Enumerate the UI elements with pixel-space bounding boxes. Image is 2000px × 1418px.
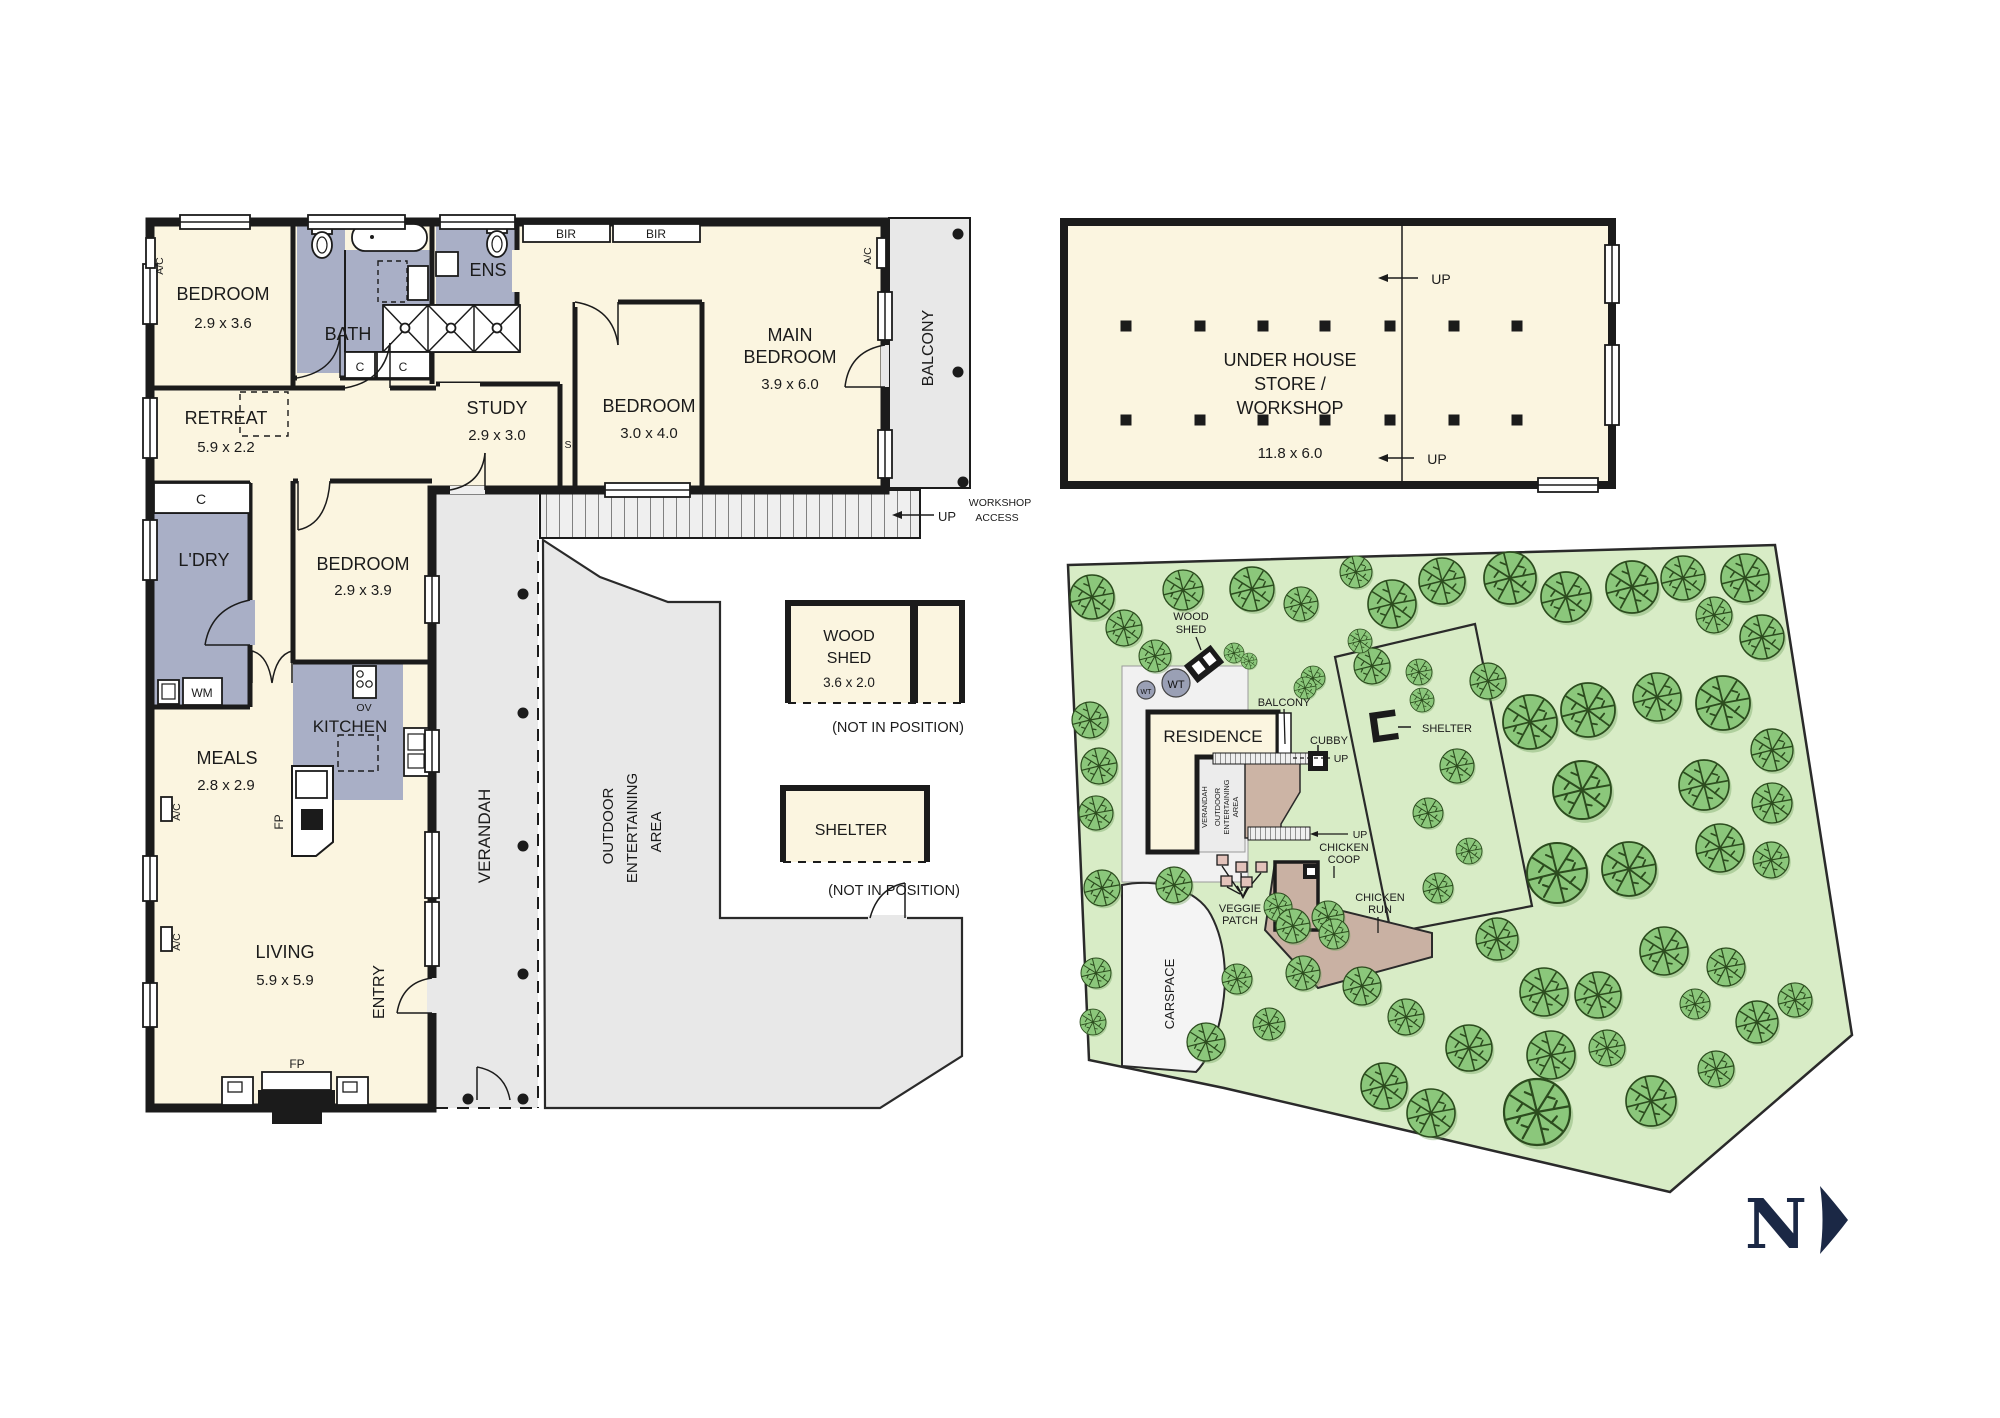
ldry-label: L'DRY — [178, 550, 229, 570]
shelter-note: (NOT IN POSITION) — [828, 883, 960, 899]
wood-shed-box: WOOD SHED 3.6 x 2.0 (NOT IN POSITION) — [788, 603, 964, 736]
site-woodshed-line1: WOOD — [1173, 611, 1208, 623]
chicken-coop-line1: CHICKEN — [1319, 842, 1369, 854]
post — [958, 477, 969, 488]
bedroom3-dims: 3.0 x 4.0 — [620, 425, 678, 442]
living-dims: 5.9 x 5.9 — [256, 972, 314, 989]
ac-label: A/C — [171, 803, 183, 821]
bedroom4-label: BEDROOM — [316, 554, 409, 574]
bedroom1-label: BEDROOM — [176, 284, 269, 304]
window — [878, 430, 892, 478]
window — [425, 902, 439, 966]
ac-label: A/C — [154, 257, 166, 275]
ac-label: A/C — [171, 933, 183, 951]
woodshed-line2: SHED — [827, 650, 871, 667]
structural-column — [1195, 415, 1206, 426]
site-outdoor-line3: AREA — [1231, 797, 1240, 817]
study-label: STUDY — [466, 398, 527, 418]
woodshed-line1: WOOD — [823, 628, 875, 645]
woodshed-dims: 3.6 x 2.0 — [823, 675, 875, 690]
c2-label: C — [399, 360, 408, 374]
post — [518, 1094, 529, 1105]
woodshed-note: (NOT IN POSITION) — [832, 720, 964, 736]
bedroom4-dims: 2.9 x 3.9 — [334, 582, 392, 599]
outdoor-line2: ENTERTAINING — [624, 773, 641, 883]
toilet-bath — [312, 225, 332, 258]
window — [308, 215, 405, 229]
structural-column — [1320, 321, 1331, 332]
window — [180, 215, 250, 229]
structural-column — [1195, 321, 1206, 332]
outdoor-line3: AREA — [648, 812, 665, 853]
window — [143, 520, 157, 580]
ov-label: OV — [356, 702, 371, 714]
study-dims: 2.9 x 3.0 — [468, 427, 526, 444]
c1-label: C — [356, 360, 365, 374]
kitchen-label: KITCHEN — [313, 717, 388, 736]
shelter-box: SHELTER (NOT IN POSITION) — [783, 788, 960, 899]
structural-column — [1512, 321, 1523, 332]
window — [143, 398, 157, 458]
ac-unit — [877, 238, 886, 268]
ens-vanity — [436, 252, 458, 276]
up-label: UP — [1427, 451, 1446, 467]
under-house-workshop: UP UP UNDER HOUSE STORE / WORKSHOP 11.8 … — [1064, 222, 1619, 492]
up-label: UP — [938, 509, 956, 524]
bath-label: BATH — [325, 324, 372, 344]
structural-column — [1385, 321, 1396, 332]
skylight-row — [383, 305, 520, 352]
fp-living-label: FP — [289, 1057, 304, 1071]
ldry-c-label: C — [196, 491, 206, 507]
bedroom1-dims: 2.9 x 3.6 — [194, 315, 252, 332]
bath-vanity — [408, 266, 428, 300]
retreat-label: RETREAT — [185, 408, 268, 428]
wt-small-label: WT — [1141, 689, 1153, 696]
veggie-line1: VEGGIE — [1219, 903, 1261, 915]
main-bedroom-line2: BEDROOM — [743, 347, 836, 367]
living-label: LIVING — [255, 942, 314, 962]
entry-label: ENTRY — [371, 965, 388, 1019]
structural-column — [1121, 415, 1132, 426]
post — [518, 841, 529, 852]
structural-column — [1449, 415, 1460, 426]
bir1-label: BIR — [556, 227, 576, 241]
up-label: UP — [1431, 271, 1450, 287]
post — [953, 229, 964, 240]
chicken-coop-line2: COOP — [1328, 854, 1360, 866]
balcony-label: BALCONY — [920, 309, 937, 386]
structural-column — [1385, 415, 1396, 426]
window — [878, 292, 892, 340]
site-verandah-label: VERANDAH — [1200, 786, 1209, 828]
main-bedroom-dims: 3.9 x 6.0 — [761, 376, 819, 393]
shelter-box-label: SHELTER — [815, 822, 888, 839]
veggie-line2: PATCH — [1222, 915, 1258, 927]
bedroom3-label: BEDROOM — [602, 396, 695, 416]
north-arrow-icon — [1820, 1186, 1848, 1254]
post — [518, 589, 529, 600]
meals-label: MEALS — [196, 748, 257, 768]
verandah-label: VERANDAH — [475, 789, 494, 883]
window — [425, 730, 439, 772]
wt-large-label: WT — [1167, 679, 1184, 691]
workshop-line1: UNDER HOUSE — [1223, 350, 1356, 370]
post — [953, 367, 964, 378]
workshop-access-line1: WORKSHOP — [969, 497, 1031, 509]
north-indicator: N — [1745, 1185, 1848, 1265]
meals-dims: 2.8 x 2.9 — [197, 777, 255, 794]
fp-kitchen-label: FP — [272, 814, 286, 829]
ens-label: ENS — [469, 260, 506, 280]
window — [143, 983, 157, 1027]
site-stairs-bottom — [1248, 827, 1310, 840]
workshop-access-stairs — [540, 490, 920, 538]
ac-label: A/C — [862, 247, 874, 265]
window — [425, 832, 439, 898]
kitchen-fireplace-bench — [292, 766, 333, 856]
site-woodshed-line2: SHED — [1176, 624, 1207, 636]
up-label: UP — [1334, 753, 1349, 765]
post — [518, 969, 529, 980]
living-fireplace — [222, 1072, 368, 1124]
floorplan-canvas: BEDROOM 2.9 x 3.6 BATH ENS BIR BIR MAIN … — [0, 0, 2000, 1413]
window — [605, 483, 690, 497]
bir2-label: BIR — [646, 227, 666, 241]
north-label: N — [1745, 1185, 1807, 1265]
site-residence-label: RESIDENCE — [1163, 727, 1262, 746]
workshop-access-line2: ACCESS — [975, 512, 1018, 524]
floorplan-page: BEDROOM 2.9 x 3.6 BATH ENS BIR BIR MAIN … — [0, 0, 2000, 1413]
window — [440, 215, 515, 229]
structural-column — [1121, 321, 1132, 332]
retreat-dims: 5.9 x 2.2 — [197, 439, 255, 456]
site-outdoor-line1: OUTDOOR — [1213, 787, 1222, 826]
workshop-line3: WORKSHOP — [1236, 398, 1343, 418]
site-outdoor-line2: ENTERTAINING — [1222, 779, 1231, 834]
window — [425, 576, 439, 623]
post — [518, 708, 529, 719]
wm-label: WM — [191, 686, 212, 700]
workshop-dims: 11.8 x 6.0 — [1258, 445, 1323, 462]
workshop-line2: STORE / — [1254, 374, 1326, 394]
site-plan: UP UP WOOD SHED WT WT BALCONY RESIDENCE … — [1068, 545, 1852, 1192]
site-balcony-label: BALCONY — [1258, 697, 1311, 709]
structural-column — [1258, 321, 1269, 332]
structural-column — [1512, 415, 1523, 426]
oven — [353, 666, 376, 698]
outdoor-line1: OUTDOOR — [600, 788, 617, 865]
site-cubby-label: CUBBY — [1310, 735, 1349, 747]
main-bedroom-line1: MAIN — [768, 325, 813, 345]
site-shelter-label: SHELTER — [1422, 723, 1472, 735]
post — [463, 1094, 474, 1105]
up-label: UP — [1353, 829, 1368, 841]
carspace-label: CARSPACE — [1162, 958, 1177, 1029]
structural-column — [1449, 321, 1460, 332]
robe-s-label: S — [564, 439, 571, 451]
chicken-run-line1: CHICKEN — [1355, 892, 1405, 904]
chicken-run-line2: RUN — [1368, 904, 1392, 916]
window — [143, 856, 157, 901]
